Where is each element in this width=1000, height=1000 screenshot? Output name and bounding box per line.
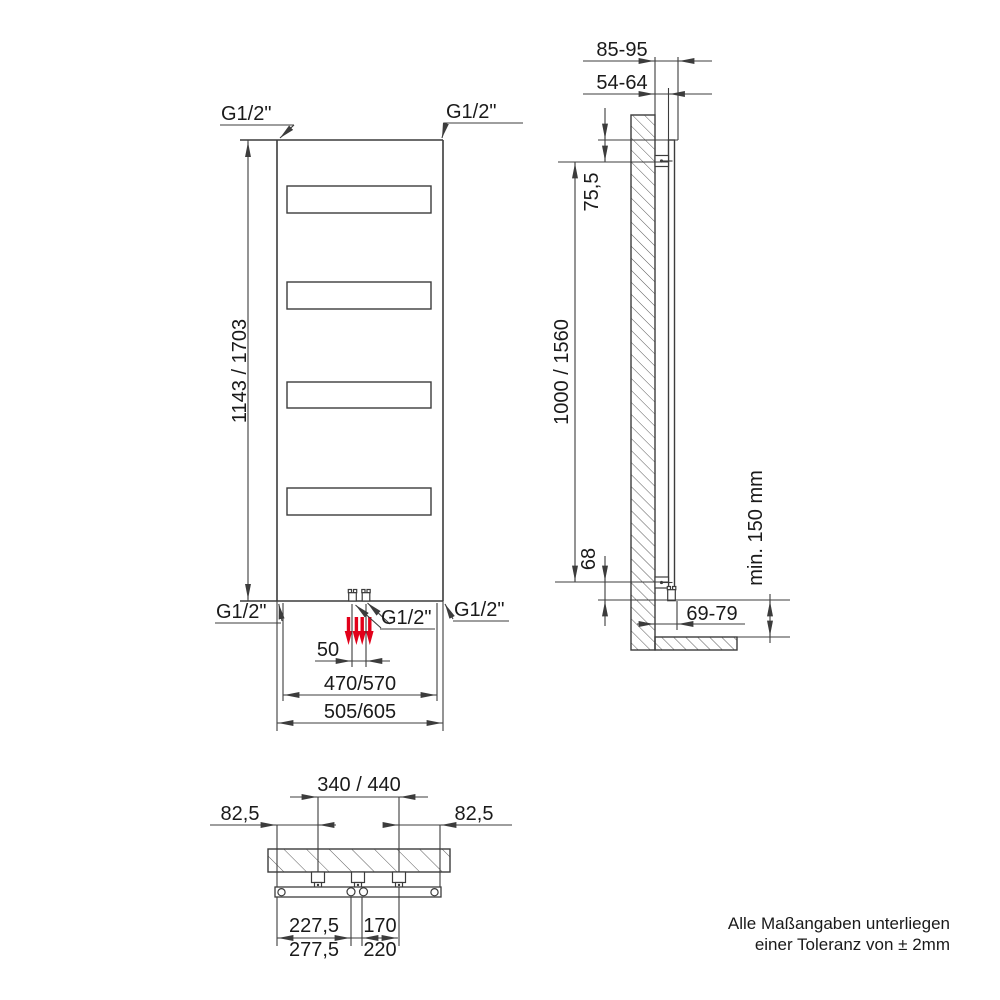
front-conn-top-left-label: G1/2" (221, 103, 271, 125)
flow-arrow (358, 617, 366, 645)
panel-slot (287, 282, 431, 309)
bottom-conn-left-small-label: 227,5 (289, 915, 339, 937)
front-conn-bottom-right-label: G1/2" (454, 599, 504, 621)
flow-arrow (366, 617, 374, 645)
side-bracket-span-label: 1000 / 1560 (551, 319, 573, 425)
front-inner-width-label: 470/570 (324, 673, 396, 695)
connection-port (347, 888, 355, 896)
technical-drawing-page: 1143 / 1703 G1/2" G1/2" G1/2" G1/2" G1/2… (0, 0, 1000, 1000)
front-conn-top-right-label: G1/2" (446, 101, 496, 123)
bracket-screw-dots (317, 884, 400, 886)
floor-section (655, 637, 737, 650)
tolerance-note-line1: Alle Maßangaben unterliegen (728, 914, 950, 933)
tolerance-note-line2: einer Toleranz von ± 2mm (755, 935, 950, 954)
flow-arrow (345, 617, 353, 645)
bracket (312, 872, 325, 883)
side-depth-total-label: 85-95 (596, 39, 647, 61)
panel-slots (287, 186, 431, 515)
side-top-offset-label: 75,5 (581, 173, 603, 212)
radiator-side-profile (669, 140, 675, 600)
radiator-bottom-rail (275, 887, 441, 897)
bottom-conn-left-large-label: 277,5 (289, 939, 339, 961)
panel-slot (287, 488, 431, 515)
bottom-edge-left-label: 82,5 (221, 803, 260, 825)
bottom-view: 340 / 440 82,5 82,5 227,5 277,5 170 220 (210, 774, 512, 961)
front-view: 1143 / 1703 G1/2" G1/2" G1/2" G1/2" G1/2… (215, 101, 523, 731)
side-bottom-offset-label: 68 (578, 548, 600, 570)
front-outer-width-label: 505/605 (324, 701, 396, 723)
side-conn-wall-label: 69-79 (686, 603, 737, 625)
bottom-valve-fittings (348, 590, 370, 602)
bottom-bracket-span-label: 340 / 440 (317, 774, 400, 796)
bracket (393, 872, 406, 883)
bottom-bracket-half-small-label: 170 (363, 915, 396, 937)
connection-port (360, 888, 368, 896)
bottom-edge-right-label: 82,5 (455, 803, 494, 825)
front-conn-bottom-center-label: G1/2" (381, 607, 431, 629)
wall-section-top (268, 849, 450, 872)
panel-slot (287, 382, 431, 408)
side-floor-clearance-label: min. 150 mm (745, 470, 767, 586)
front-conn-bottom-left-label: G1/2" (216, 601, 266, 623)
end-port (431, 889, 438, 896)
bottom-bracket-half-large-label: 220 (363, 939, 396, 961)
end-port (278, 889, 285, 896)
wall-section (631, 115, 655, 650)
panel-slot (287, 186, 431, 213)
flow-direction-arrows (345, 617, 374, 645)
bracket (352, 872, 365, 883)
side-depth-wall-label: 54-64 (596, 72, 647, 94)
front-conn-spacing-label: 50 (317, 639, 339, 661)
tolerance-note: Alle Maßangaben unterliegen einer Tolera… (728, 914, 950, 954)
front-height-label: 1143 / 1703 (229, 319, 251, 423)
radiator-dimension-drawing: 1143 / 1703 G1/2" G1/2" G1/2" G1/2" G1/2… (0, 0, 1000, 1000)
side-view: 85-95 54-64 75,5 1000 / 1560 68 69-79 mi… (551, 39, 790, 650)
